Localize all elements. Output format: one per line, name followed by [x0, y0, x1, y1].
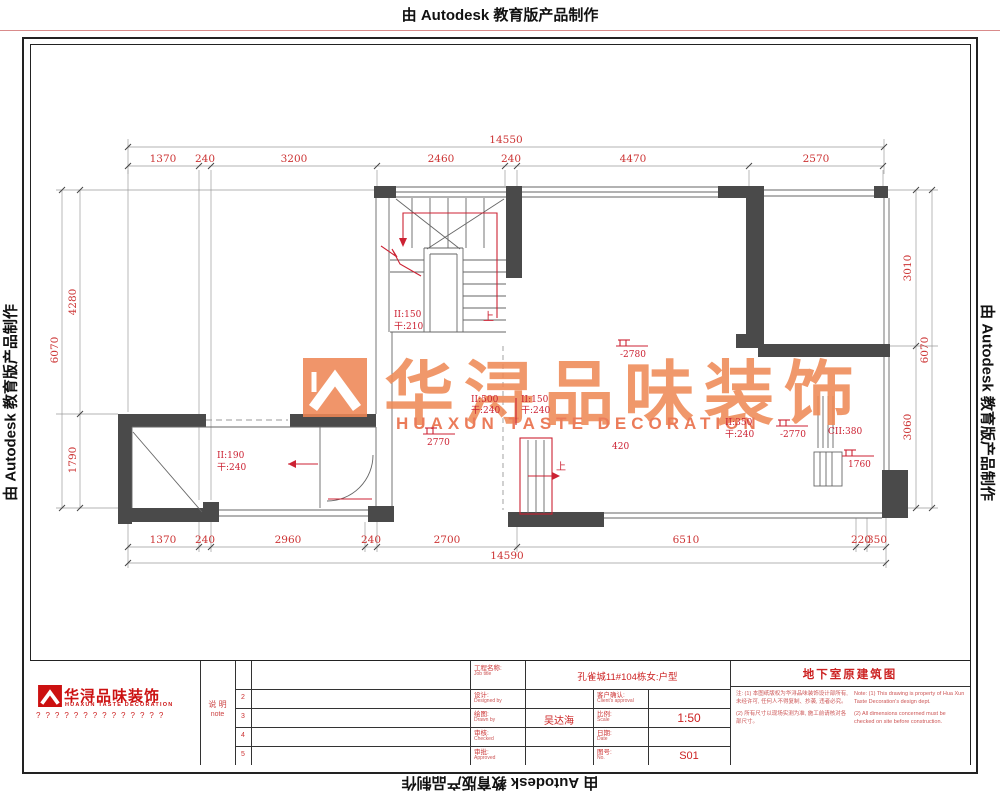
svg-text:干:240: 干:240	[217, 462, 246, 473]
title-block: 华浔品味装饰 HUAXUN TASTE DECORATION ?????????…	[30, 660, 970, 765]
tb-drawing-number: S01	[648, 750, 730, 762]
tb-phone-row: ??????????????	[36, 711, 168, 720]
svg-text:干:240: 干:240	[521, 405, 550, 416]
tb-line	[470, 661, 471, 765]
tb-client-label-en: Client's approval	[597, 699, 634, 705]
tb-job-label-en: Job title	[474, 672, 502, 678]
tb-company-en: HUAXUN TASTE DECORATION	[65, 702, 173, 708]
tb-draw-label-en: Drawn by	[474, 718, 495, 724]
up-arrow-label-1: 上	[483, 310, 494, 323]
tb-no-label: 图号:No.	[597, 749, 612, 762]
tb-check-label: 审核:Checked	[474, 730, 494, 743]
tb-project-title: 孔雀城11#104栋女:户型	[525, 669, 730, 683]
elevation-marker-3	[776, 420, 808, 426]
tb-drawn-by-value: 吴达海	[525, 712, 593, 727]
tb-notes-cn-2: (2) 所有尺寸以现场实测为准, 施工前请核对各部尺寸。	[736, 711, 848, 727]
elevation-value-2: 2770	[427, 438, 450, 448]
tb-job-label: 工程名称:Job title	[474, 665, 502, 678]
tb-note-label-en: note	[200, 711, 235, 718]
tb-row-number: 4	[235, 732, 251, 739]
tb-line	[235, 689, 730, 690]
elevation-value-4: 1760	[848, 460, 871, 470]
stair-riser-label: II:150	[394, 310, 422, 320]
elevation-marker-4	[842, 450, 874, 456]
tb-line	[730, 686, 970, 687]
tb-row-number: 3	[235, 713, 251, 720]
tb-note-cell: 说 明 note	[200, 661, 235, 765]
up-arrow-label-2: 上	[556, 461, 566, 473]
tb-note-label: 说 明	[200, 699, 235, 710]
tb-notes-cn-1: 注: (1) 本图纸版权为华浔品味装饰设计部所有, 未经许可, 任何人不得复制、…	[736, 691, 848, 707]
svg-text:420: 420	[612, 442, 629, 452]
svg-text:II:350: II:350	[725, 418, 753, 428]
tb-notes-en-1: Note: (1) This drawing is property of Hu…	[854, 691, 966, 707]
tb-scale-label-en: Scale	[597, 718, 612, 724]
svg-text:II:150: II:150	[521, 395, 549, 405]
tb-notes-en-2: (2) All dimensions concerned must be che…	[854, 711, 966, 727]
cii-label: CII:380	[828, 427, 862, 437]
tb-notes-en: Note: (1) This drawing is property of Hu…	[854, 691, 966, 727]
tb-date-label: 日期:Date	[597, 730, 612, 743]
tb-scale-label: 比例:Scale	[597, 711, 612, 724]
tb-row-number: 2	[235, 694, 251, 701]
red-paths	[288, 213, 874, 514]
svg-text:II:500: II:500	[471, 395, 499, 405]
tb-sheet-title: 地下室原建筑图	[730, 666, 970, 682]
svg-text:干:240: 干:240	[471, 405, 500, 416]
tb-design-label-en: Designed by	[474, 699, 502, 705]
tb-line	[235, 708, 730, 709]
tb-line	[235, 746, 730, 747]
tb-logo-icon	[38, 685, 62, 707]
svg-text:干:240: 干:240	[725, 429, 754, 440]
tb-client-label: 客户确认:Client's approval	[597, 692, 634, 705]
red-labels: II:150 干:210 上 II:500 干:240 II:150 干:240…	[217, 310, 871, 473]
stair-tread-label: 干:210	[394, 321, 423, 332]
tb-draw-label: 绘图:Drawn by	[474, 711, 495, 724]
elevation-marker-1	[616, 340, 648, 346]
svg-text:II:190: II:190	[217, 451, 245, 461]
elevation-value-3: -2770	[780, 430, 806, 440]
tb-check-label-en: Checked	[474, 737, 494, 743]
elevation-marker-2	[423, 428, 455, 434]
tb-no-label-en: No.	[597, 756, 612, 762]
tb-approve-label: 审批:Approved	[474, 749, 495, 762]
tb-scale-value: 1:50	[648, 711, 730, 725]
tb-date-label-en: Date	[597, 737, 612, 743]
tb-line	[235, 727, 730, 728]
tb-approve-label-en: Approved	[474, 756, 495, 762]
tb-line	[251, 661, 252, 765]
elevation-value-1: -2780	[620, 350, 646, 360]
tb-row-number: 5	[235, 751, 251, 758]
tb-design-label: 设计:Designed by	[474, 692, 502, 705]
tb-notes-cn: 注: (1) 本图纸版权为华浔品味装饰设计部所有, 未经许可, 任何人不得复制、…	[736, 691, 848, 727]
